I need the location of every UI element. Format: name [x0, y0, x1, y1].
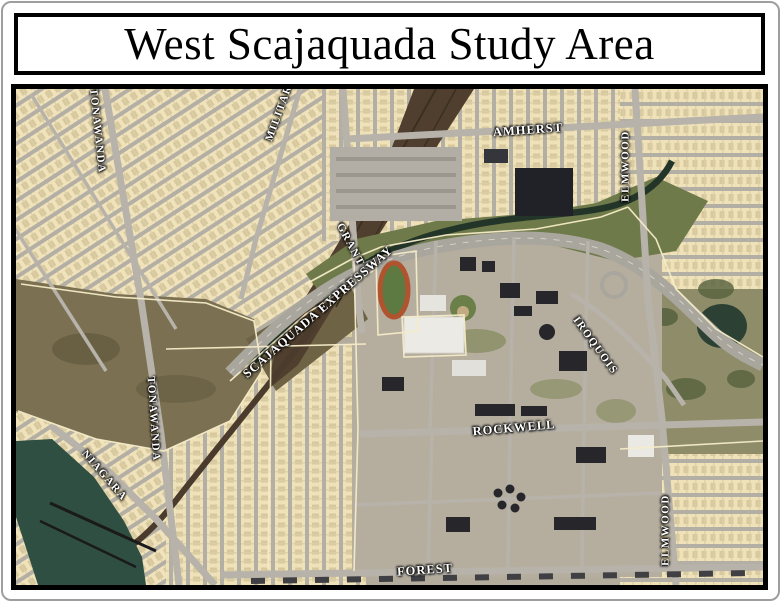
- campus-lawn: [596, 399, 636, 423]
- aerial-map: MILITARY TONAWANDA AMHERST ELMWOOD GRANT…: [16, 89, 763, 585]
- white-arena-building: [404, 317, 464, 353]
- page-title: West Scajaquada Study Area: [124, 22, 654, 67]
- white-building: [452, 360, 486, 376]
- tree-cluster: [698, 279, 734, 299]
- campus-lawn: [530, 379, 582, 399]
- tree-cluster: [727, 370, 755, 388]
- running-track: [380, 263, 408, 317]
- map-box: MILITARY TONAWANDA AMHERST ELMWOOD GRANT…: [11, 84, 768, 590]
- large-dark-building: [515, 168, 573, 216]
- white-building: [628, 435, 654, 457]
- title-box: West Scajaquada Study Area: [14, 13, 765, 75]
- aerial-map-artwork: [16, 89, 763, 585]
- white-building: [420, 295, 446, 311]
- baseball-infield: [457, 306, 469, 318]
- wetland-brush: [136, 375, 216, 403]
- dark-building: [484, 149, 508, 163]
